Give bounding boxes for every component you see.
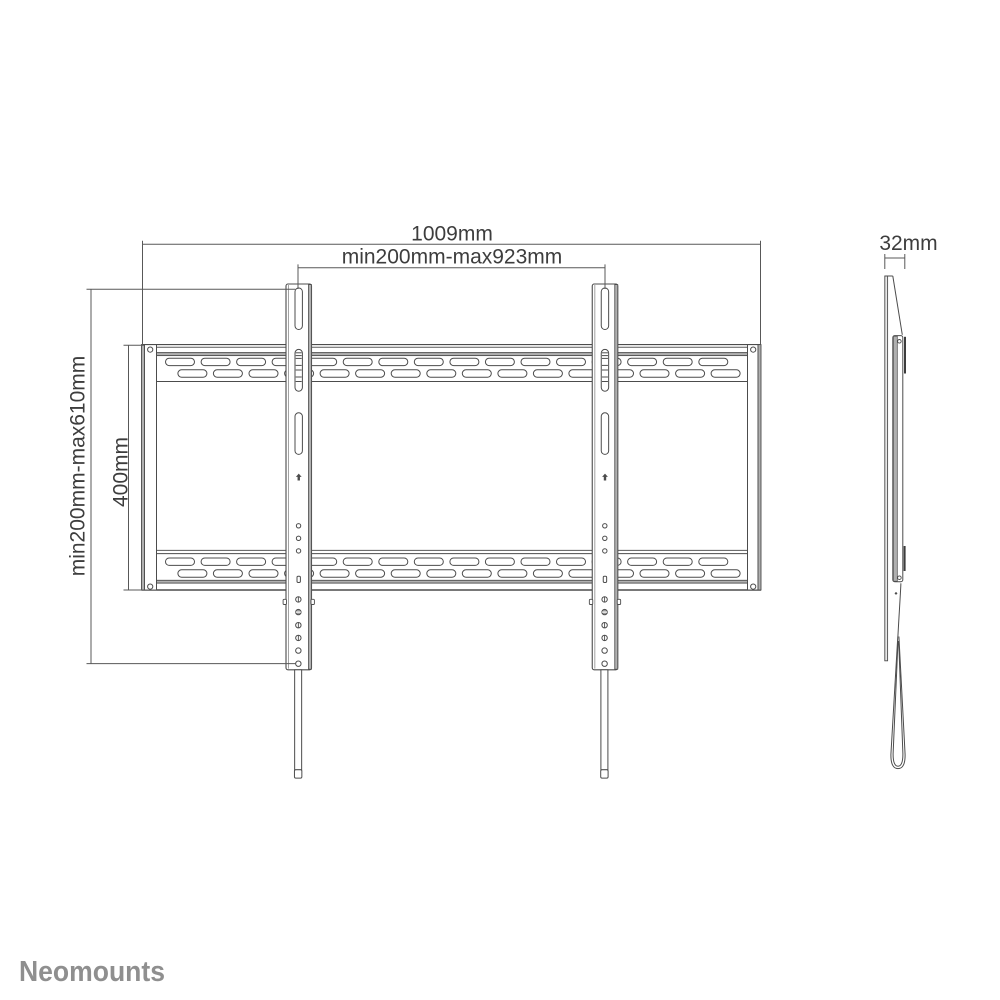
svg-text:1009mm: 1009mm — [411, 222, 493, 245]
svg-text:min200mm-max923mm: min200mm-max923mm — [342, 246, 563, 269]
svg-text:Neomounts: Neomounts — [19, 956, 165, 988]
svg-text:32mm: 32mm — [879, 232, 937, 255]
svg-text:400mm: 400mm — [109, 437, 132, 507]
svg-text:min200mm-max610mm: min200mm-max610mm — [67, 356, 90, 577]
